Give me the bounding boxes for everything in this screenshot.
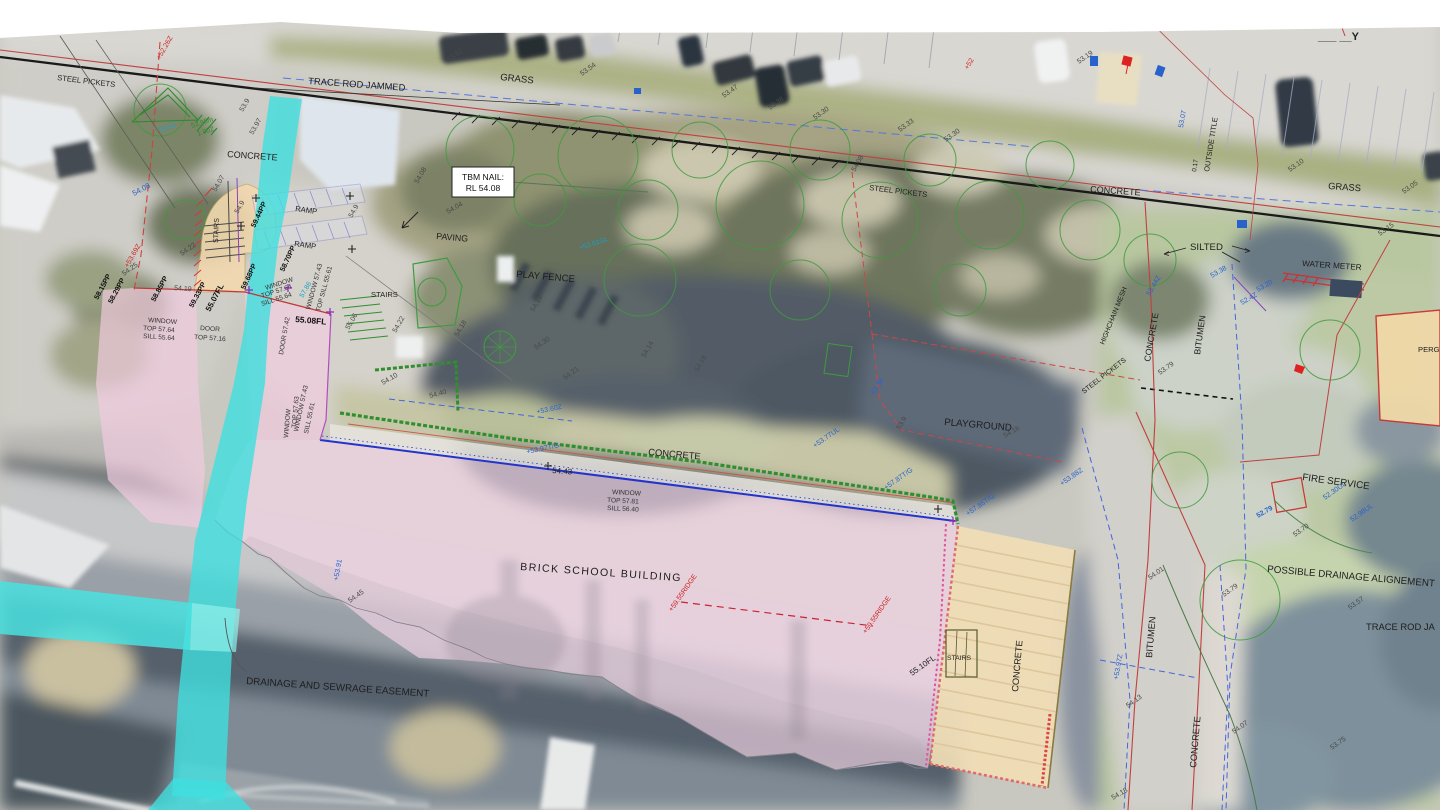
svg-text:STAIRS: STAIRS — [213, 218, 221, 243]
svg-text:54.43: 54.43 — [552, 466, 573, 476]
svg-text:GRASS: GRASS — [1328, 180, 1362, 193]
svg-text:TRACE ROD JA: TRACE ROD JA — [1366, 621, 1436, 632]
svg-text:RL 54.08: RL 54.08 — [466, 183, 501, 193]
svg-text:STAIRS: STAIRS — [371, 290, 398, 299]
svg-text:54.19: 54.19 — [174, 285, 192, 293]
svg-text:STAIRS: STAIRS — [947, 655, 972, 662]
svg-text:DOOR: DOOR — [200, 325, 220, 333]
svg-text:SILTED: SILTED — [1190, 242, 1223, 253]
svg-text:TBM NAIL:: TBM NAIL: — [462, 172, 504, 182]
svg-text:PERG: PERG — [1418, 345, 1440, 354]
svg-text:___ __Y: ___ __Y — [1317, 31, 1360, 43]
